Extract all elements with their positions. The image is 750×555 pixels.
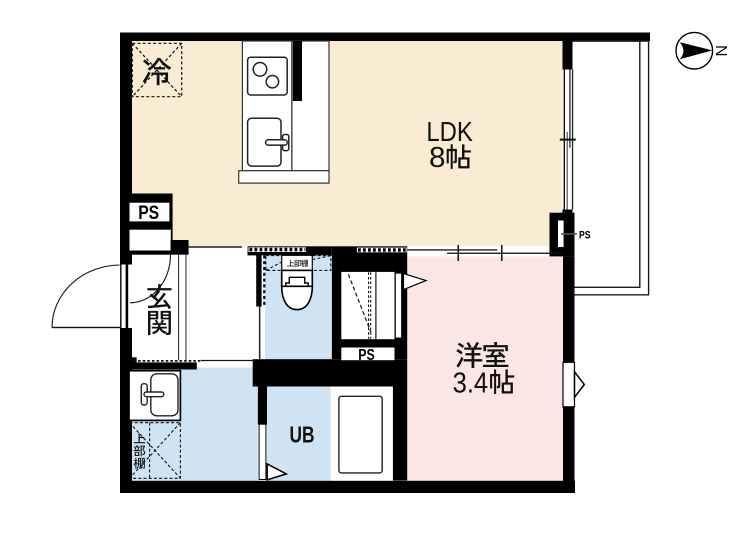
svg-text:N: N bbox=[712, 45, 729, 57]
svg-text:UB: UB bbox=[290, 422, 315, 448]
svg-text:8: 8 bbox=[429, 142, 446, 174]
svg-text:3.4: 3.4 bbox=[453, 368, 489, 400]
svg-text:PS: PS bbox=[579, 230, 591, 242]
svg-text:PS: PS bbox=[138, 203, 159, 224]
svg-text:PS: PS bbox=[358, 347, 375, 364]
